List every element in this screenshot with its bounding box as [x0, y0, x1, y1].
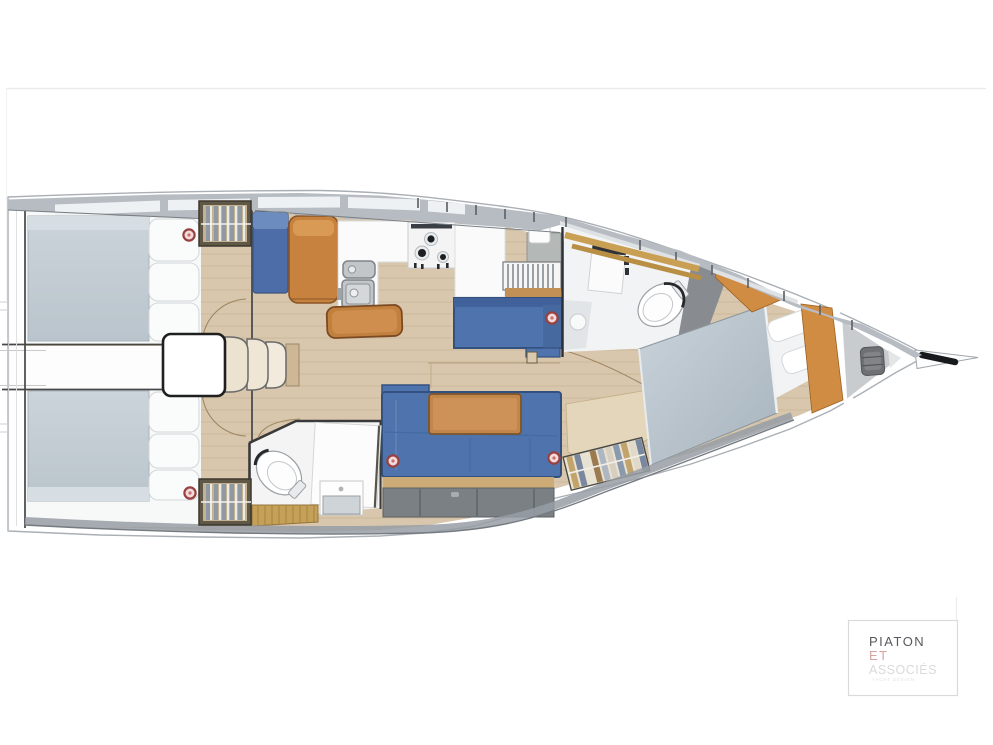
- svg-text:PIATON: PIATON: [869, 634, 925, 649]
- svg-text:ET: ET: [869, 648, 889, 663]
- svg-text:ASSOCIÉS: ASSOCIÉS: [869, 662, 937, 677]
- svg-text:YACHT DESIGN: YACHT DESIGN: [872, 677, 915, 682]
